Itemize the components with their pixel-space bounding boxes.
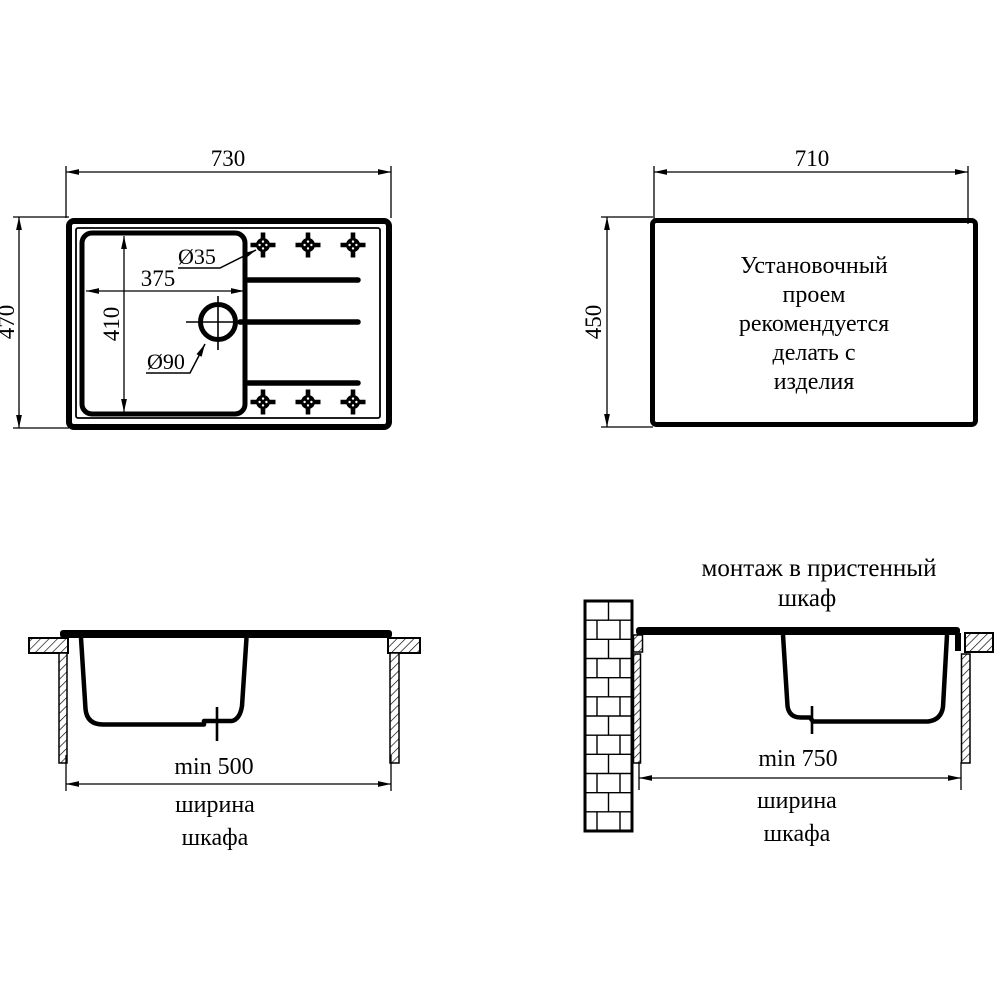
drain-diameter-label: Ø90 <box>147 349 185 374</box>
dim-min-500: min 500 <box>66 754 391 791</box>
dim-730: 730 <box>66 146 391 218</box>
note-line-4: делать с <box>773 340 856 366</box>
plan-view: 730 470 375 410 Ø35 Ø90 <box>0 146 391 428</box>
note-line-3: рекомендуется <box>739 311 889 337</box>
section-title-line2: шкаф <box>778 585 836 612</box>
caption-width-line2: шкафа <box>182 825 249 851</box>
sink-rim-edge-drop <box>955 633 961 651</box>
sink-rim-profile <box>60 630 392 638</box>
dim-450-label: 450 <box>581 305 606 340</box>
dim-710: 710 <box>654 146 968 224</box>
brick-wall <box>585 601 632 831</box>
section-standard-view: min 500 ширина шкафа <box>29 630 420 851</box>
dim-730-label: 730 <box>211 146 246 171</box>
note-line-2: проем <box>783 282 846 308</box>
dim-450: 450 <box>581 217 653 427</box>
min-width-label: min 750 <box>758 746 837 772</box>
caption-width-line1: ширина <box>175 792 255 818</box>
faucet-hole-diameter-label: Ø35 <box>178 244 216 269</box>
dim-min-750: min 750 <box>639 746 961 790</box>
technical-drawing-page: 730 470 375 410 Ø35 Ø90 <box>0 0 1000 1000</box>
bowl-profile <box>783 635 947 722</box>
section-title-line1: монтаж в пристенный <box>702 555 937 582</box>
bowl-profile <box>81 638 247 725</box>
caption-width-line1: ширина <box>757 788 837 814</box>
cabinet-wall-left <box>59 653 67 763</box>
cutout-view: 710 450 Установочный проем рекомендуется… <box>581 146 976 427</box>
dim-470: 470 <box>0 217 69 428</box>
note-line-1: Установочный <box>740 253 888 279</box>
sink-installation-drawing: 730 470 375 410 Ø35 Ø90 <box>0 0 1000 1000</box>
dim-375-label: 375 <box>141 266 176 291</box>
countertop-right <box>965 633 993 652</box>
dim-470-label: 470 <box>0 305 19 340</box>
dim-710-label: 710 <box>795 146 830 171</box>
cabinet-wall-left <box>634 654 641 763</box>
cabinet-wall-right <box>962 654 971 763</box>
min-width-label: min 500 <box>174 754 253 780</box>
countertop-left <box>29 638 68 653</box>
cabinet-wall-right <box>390 653 399 763</box>
note-line-5: изделия <box>774 369 855 395</box>
section-wall-view: монтаж в пристенный шкаф min 750 ширина … <box>585 555 993 847</box>
countertop-right <box>388 638 420 653</box>
caption-width-line2: шкафа <box>764 821 831 847</box>
sink-rim-profile <box>636 627 960 635</box>
dim-410-label: 410 <box>99 307 124 342</box>
countertop-wall-side <box>634 635 643 652</box>
